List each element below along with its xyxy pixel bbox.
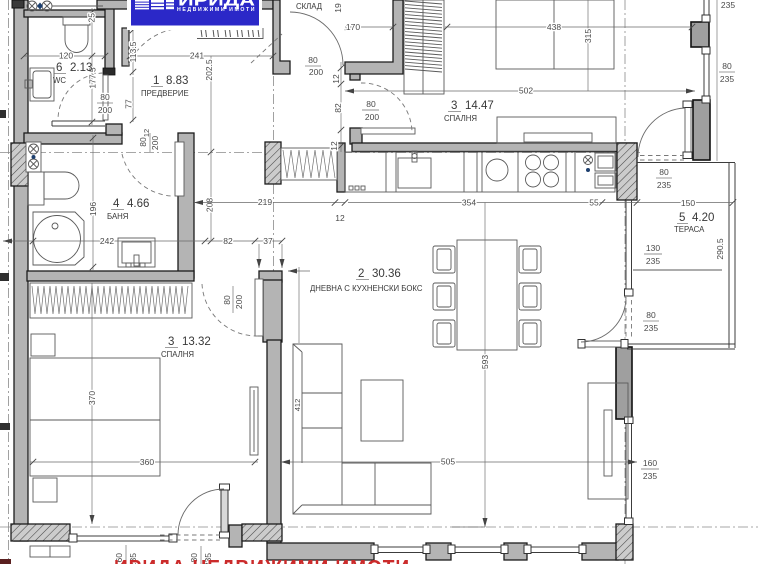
svg-text:200: 200 <box>150 136 160 150</box>
svg-text:130: 130 <box>646 243 660 253</box>
svg-text:12: 12 <box>331 74 341 84</box>
svg-text:505: 505 <box>441 457 455 467</box>
svg-text:19: 19 <box>333 3 343 13</box>
svg-text:202.5: 202.5 <box>204 59 214 81</box>
svg-text:150: 150 <box>681 198 695 208</box>
svg-text:200: 200 <box>234 295 244 309</box>
svg-text:30.36: 30.36 <box>372 268 401 280</box>
svg-text:170: 170 <box>346 22 360 32</box>
svg-text:80: 80 <box>222 295 232 305</box>
svg-text:235: 235 <box>644 323 658 333</box>
svg-text:315: 315 <box>583 29 593 43</box>
svg-text:120: 120 <box>59 51 73 61</box>
svg-text:БАНЯ: БАНЯ <box>107 212 128 221</box>
svg-text:219: 219 <box>258 197 272 207</box>
svg-text:ДНЕВНА С КУХНЕНСКИ БОКС: ДНЕВНА С КУХНЕНСКИ БОКС <box>310 284 423 293</box>
svg-text:1: 1 <box>153 75 159 87</box>
svg-text:25: 25 <box>87 13 97 23</box>
svg-text:СКЛАД: СКЛАД <box>296 2 323 11</box>
svg-text:502: 502 <box>519 86 533 96</box>
svg-text:6: 6 <box>56 62 62 74</box>
svg-text:235: 235 <box>643 471 657 481</box>
svg-text:235: 235 <box>721 0 735 10</box>
svg-text:354: 354 <box>462 198 476 208</box>
svg-text:77: 77 <box>124 99 134 109</box>
svg-text:12: 12 <box>329 141 339 151</box>
svg-text:196: 196 <box>88 202 98 216</box>
svg-text:3: 3 <box>451 100 457 112</box>
svg-text:593: 593 <box>480 355 490 369</box>
svg-text:НЕДВИЖИМИ ИМОТИ: НЕДВИЖИМИ ИМОТИ <box>177 7 255 13</box>
svg-text:2: 2 <box>358 268 364 280</box>
svg-text:55: 55 <box>589 198 599 208</box>
svg-text:235: 235 <box>720 74 734 84</box>
svg-text:241: 241 <box>190 51 204 61</box>
svg-text:4.20: 4.20 <box>692 212 714 224</box>
svg-text:37: 37 <box>263 236 273 246</box>
svg-text:113.5: 113.5 <box>128 41 138 62</box>
svg-text:82: 82 <box>333 103 343 113</box>
svg-text:ПРЕДВЕРИЕ: ПРЕДВЕРИЕ <box>141 89 189 98</box>
svg-text:ИРИДА НЕДВИЖИМИ ИМОТИ: ИРИДА НЕДВИЖИМИ ИМОТИ <box>114 557 410 564</box>
svg-text:ТЕРАСА: ТЕРАСА <box>674 225 705 234</box>
svg-text:235: 235 <box>646 256 660 266</box>
svg-text:438: 438 <box>547 22 561 32</box>
svg-text:80: 80 <box>646 310 656 320</box>
svg-text:13.32: 13.32 <box>182 336 211 348</box>
svg-text:СПАЛНЯ: СПАЛНЯ <box>161 350 194 359</box>
svg-text:80: 80 <box>138 137 148 147</box>
svg-text:WC: WC <box>53 76 66 85</box>
svg-text:200: 200 <box>365 112 379 122</box>
svg-text:80: 80 <box>722 61 732 71</box>
svg-text:80: 80 <box>308 55 318 65</box>
svg-text:200: 200 <box>309 67 323 77</box>
svg-text:8.83: 8.83 <box>166 75 188 87</box>
svg-text:4.66: 4.66 <box>127 198 149 210</box>
svg-text:82: 82 <box>223 236 233 246</box>
svg-text:360: 360 <box>140 457 154 467</box>
svg-text:СПАЛНЯ: СПАЛНЯ <box>444 114 477 123</box>
svg-text:242: 242 <box>100 236 114 246</box>
svg-text:80: 80 <box>366 99 376 109</box>
svg-text:5: 5 <box>679 212 685 224</box>
svg-text:80: 80 <box>659 167 669 177</box>
svg-text:2.13: 2.13 <box>70 62 92 74</box>
svg-text:412: 412 <box>293 399 302 412</box>
svg-text:200: 200 <box>98 105 112 115</box>
svg-text:370: 370 <box>87 391 97 405</box>
svg-text:14.47: 14.47 <box>465 100 494 112</box>
svg-text:4: 4 <box>113 198 120 210</box>
svg-text:290.5: 290.5 <box>715 238 725 260</box>
svg-text:208: 208 <box>205 198 215 212</box>
svg-text:160: 160 <box>643 458 657 468</box>
svg-text:3: 3 <box>168 336 174 348</box>
svg-text:235: 235 <box>657 180 671 190</box>
svg-text:12: 12 <box>335 213 345 223</box>
svg-text:80: 80 <box>100 92 110 102</box>
